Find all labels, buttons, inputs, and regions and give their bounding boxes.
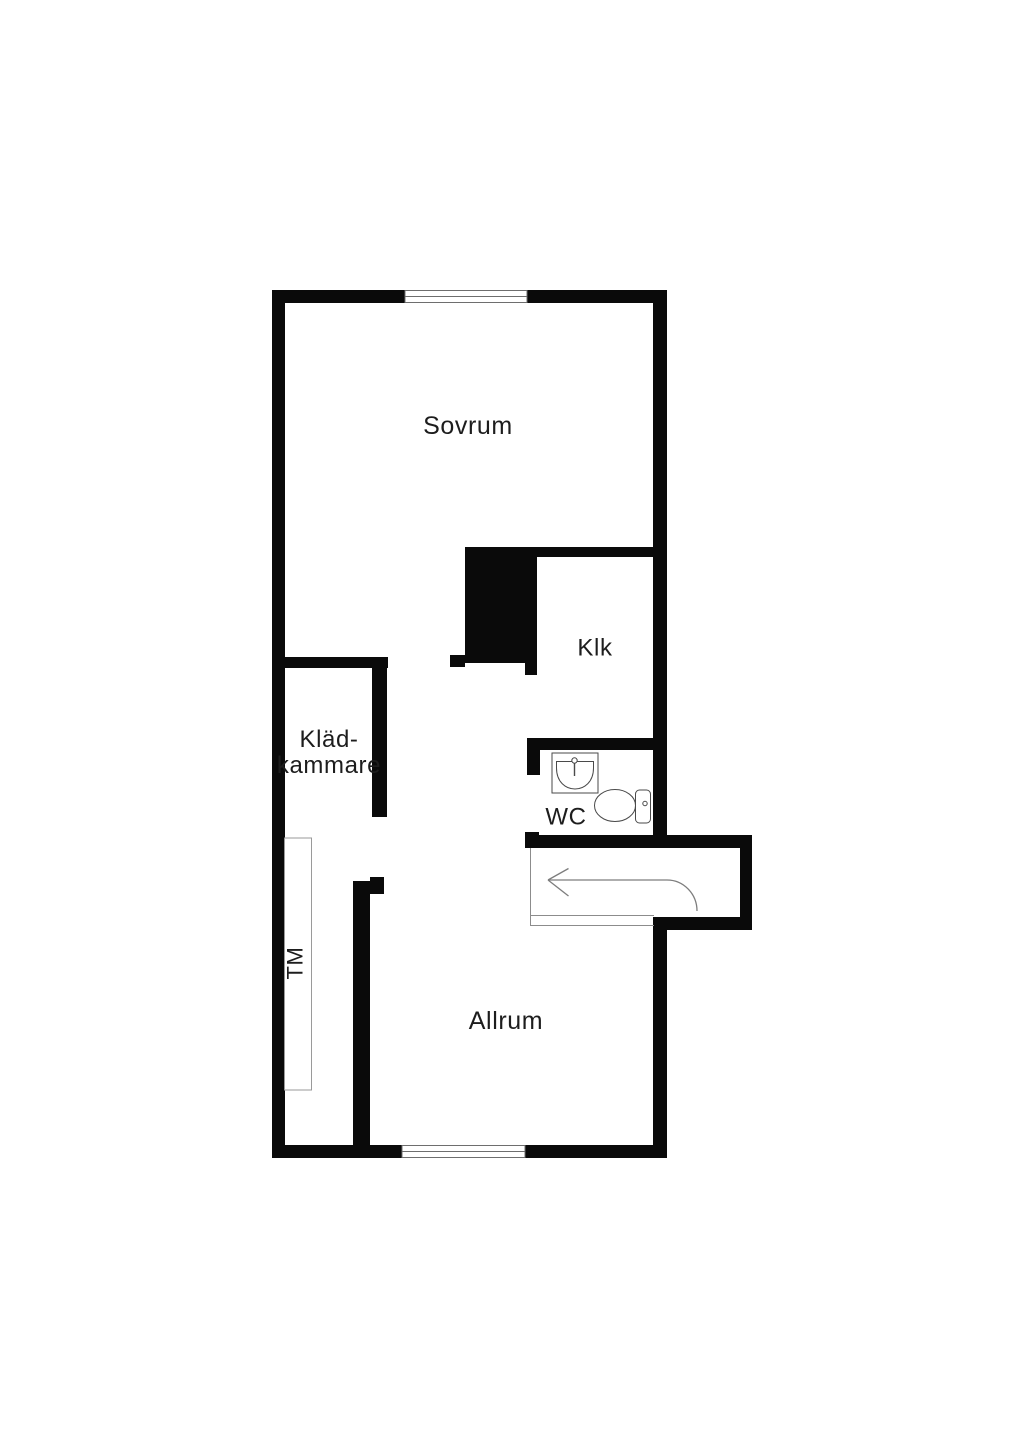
room-label-allrum: Allrum bbox=[469, 1007, 543, 1035]
floor-plan-page: SovrumKlkKläd-kammareWCAllrumTM bbox=[0, 0, 1024, 1448]
klk-bottom-wc-top-wall bbox=[527, 738, 665, 750]
shaft-stub-left bbox=[450, 655, 465, 667]
sink-faucet bbox=[572, 758, 577, 763]
outer-top-wall-left bbox=[272, 290, 405, 303]
shaft-block bbox=[465, 547, 537, 663]
room-label-kladkammare: Kläd-kammare bbox=[277, 726, 381, 779]
toilet-icon bbox=[595, 790, 651, 824]
window-bottom bbox=[402, 1146, 525, 1158]
hall-top-wall-endcap bbox=[525, 832, 539, 848]
wc-left-stub bbox=[527, 738, 540, 775]
laundry-wall bbox=[353, 881, 370, 1158]
label-tm: TM bbox=[283, 947, 308, 980]
entrance-arrow bbox=[548, 880, 697, 911]
entrance-layer bbox=[548, 869, 697, 912]
outer-left-wall bbox=[272, 290, 285, 1158]
outer-right-wall-lower bbox=[653, 917, 667, 1158]
room-label-kladkammare-line-0: Kläd- bbox=[299, 726, 358, 753]
shaft-ext-bottom bbox=[525, 663, 537, 675]
toilet-tank bbox=[636, 790, 651, 823]
labels-layer: SovrumKlkKläd-kammareWCAllrumTM bbox=[277, 412, 613, 1035]
outer-bottom-wall-right bbox=[525, 1145, 667, 1158]
room-label-kladkammare-line-1: kammare bbox=[277, 752, 381, 779]
room-label-wc: WC bbox=[545, 804, 586, 831]
kladkammare-right-wall bbox=[372, 657, 387, 817]
threshold-layer bbox=[531, 848, 655, 926]
window-top bbox=[405, 291, 527, 303]
toilet-bowl bbox=[595, 790, 636, 822]
kladkammare-top-wall bbox=[280, 657, 388, 668]
hall-top-wall bbox=[527, 835, 752, 848]
vestibule-right-wall bbox=[740, 835, 752, 930]
entrance-arrow-barb-1 bbox=[548, 880, 569, 896]
outer-right-wall-upper bbox=[653, 290, 667, 848]
laundry-wall-hook bbox=[370, 877, 384, 894]
klk-top-wall bbox=[537, 547, 665, 557]
outer-top-wall-right bbox=[527, 290, 667, 303]
entrance-arrow-barb-0 bbox=[548, 869, 569, 881]
room-label-klk: Klk bbox=[577, 635, 613, 662]
outer-bottom-wall-left bbox=[272, 1145, 402, 1158]
floor-plan: SovrumKlkKläd-kammareWCAllrumTM bbox=[0, 0, 1024, 1448]
sink-icon bbox=[552, 753, 598, 793]
room-label-sovrum: Sovrum bbox=[423, 412, 513, 440]
vestibule-bottom-wall bbox=[655, 917, 752, 930]
toilet-knob bbox=[643, 801, 647, 805]
